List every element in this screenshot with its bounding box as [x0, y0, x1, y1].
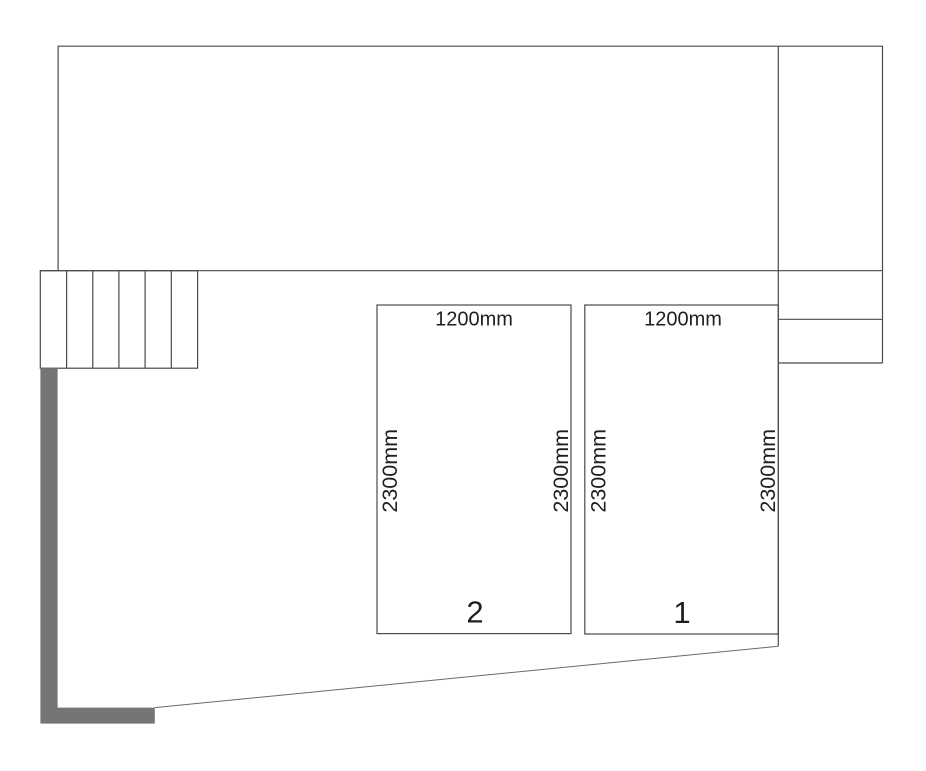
svg-text:1200mm: 1200mm — [644, 309, 722, 331]
svg-text:2300mm: 2300mm — [378, 429, 402, 513]
svg-text:2300mm: 2300mm — [549, 429, 573, 513]
svg-text:2300mm: 2300mm — [587, 429, 611, 513]
svg-text:1200mm: 1200mm — [435, 309, 513, 331]
svg-text:2: 2 — [466, 595, 483, 630]
svg-text:1: 1 — [673, 595, 690, 630]
svg-text:2300mm: 2300mm — [756, 429, 780, 513]
